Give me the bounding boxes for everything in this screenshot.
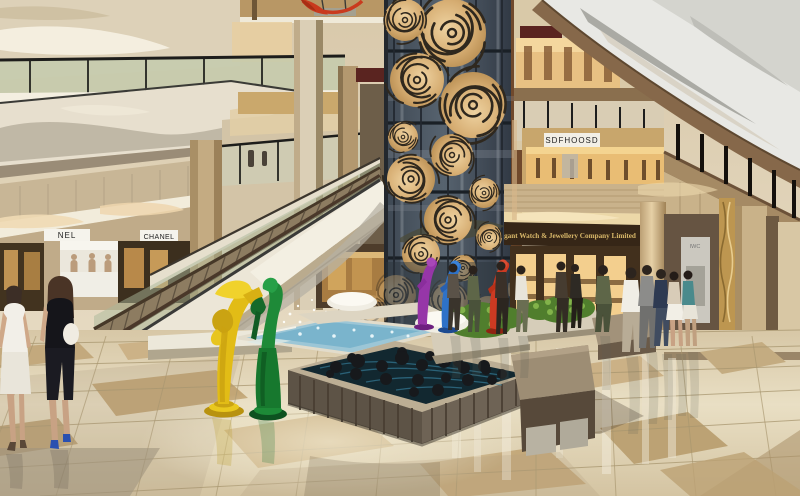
svg-text:NEL: NEL bbox=[58, 231, 77, 240]
svg-text:IWC: IWC bbox=[690, 244, 701, 250]
svg-text:SDFHOOSD: SDFHOOSD bbox=[545, 136, 598, 145]
svg-text:CHANEL: CHANEL bbox=[144, 234, 175, 241]
svg-text:gant Watch & Jewellery Company: gant Watch & Jewellery Company Limited bbox=[504, 232, 636, 240]
